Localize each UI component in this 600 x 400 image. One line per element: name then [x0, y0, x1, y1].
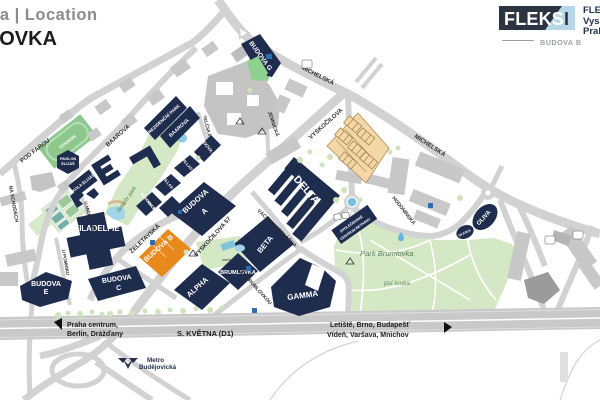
svg-text:psí louka: psí louka: [383, 280, 410, 287]
svg-text:Park Brumlovka: Park Brumlovka: [360, 249, 414, 258]
svg-text:BUDOVA: BUDOVA: [31, 281, 61, 288]
svg-text:Letiště, Brno, Budapešť: Letiště, Brno, Budapešť: [330, 322, 410, 329]
svg-text:Metro: Metro: [147, 357, 164, 364]
svg-text:Praha centrum,: Praha centrum,: [67, 322, 118, 329]
svg-text:FILADELFIE: FILADELFIE: [74, 224, 119, 233]
svg-text:Berlín, Drážďany: Berlín, Drážďany: [67, 331, 123, 338]
svg-text:ELIJÁŠ: ELIJÁŠ: [61, 161, 75, 166]
svg-text:C: C: [116, 285, 122, 293]
svg-text:náměstí: náměstí: [222, 258, 235, 262]
svg-text:PAVILON: PAVILON: [60, 157, 77, 161]
svg-text:Vídeň, Varšava, Mnichov: Vídeň, Varšava, Mnichov: [327, 332, 409, 339]
svg-text:Budějovická: Budějovická: [139, 364, 177, 371]
svg-text:S. KVĚTNA (D1): S. KVĚTNA (D1): [177, 329, 234, 338]
svg-text:E: E: [44, 289, 49, 296]
